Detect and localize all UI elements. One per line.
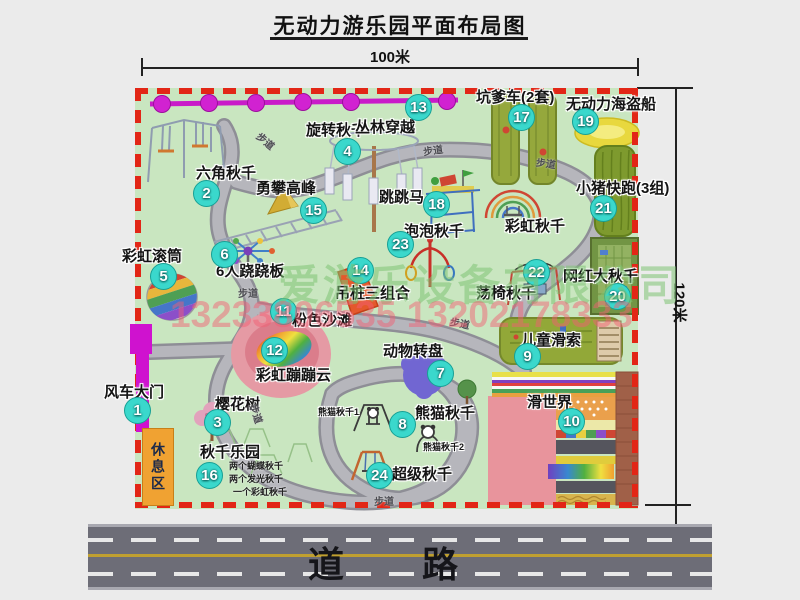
badge-13: 13	[405, 94, 432, 121]
badge-4: 4	[334, 138, 361, 165]
park-plan-image: 无动力游乐园平面布局图 100米 120米	[0, 0, 800, 600]
rest-area: 休息区	[142, 428, 174, 506]
rest-area-label: 休息区	[148, 442, 168, 493]
park-border-left	[135, 88, 141, 508]
badge-15: 15	[300, 197, 327, 224]
badge-3: 3	[204, 409, 231, 436]
badge-20: 20	[604, 283, 631, 310]
badge-8: 8	[389, 411, 416, 438]
label-rainbow-cloud: 彩虹蹦蹦云	[256, 364, 331, 385]
label-jumping-horse: 跳跳马	[379, 186, 424, 207]
badge-24: 24	[366, 462, 393, 489]
label-bubble-swing: 泡泡秋千	[404, 220, 464, 241]
trail-label: 步道	[374, 493, 394, 508]
label-jungle-crossing: 丛林穿越	[355, 116, 415, 137]
badge-14: 14	[347, 257, 374, 284]
label-kengdie-car: 坑爹车(2套)	[476, 86, 554, 107]
road: 道 路	[88, 524, 712, 590]
dimension-tick	[645, 504, 691, 506]
dimension-tick	[141, 58, 143, 76]
dimension-height-label: 120米	[670, 273, 691, 333]
badge-22: 22	[523, 259, 550, 286]
badge-2: 2	[193, 180, 220, 207]
badge-12: 12	[261, 337, 288, 364]
badge-16: 16	[196, 462, 223, 489]
windmill-gate-icon	[130, 324, 152, 354]
park-border-right	[632, 88, 638, 508]
badge-19: 19	[572, 108, 599, 135]
dimension-tick	[637, 87, 693, 89]
dimension-tick	[637, 58, 639, 76]
badge-21: 21	[590, 195, 617, 222]
label-hanging-piles: 吊桩三组合	[335, 282, 410, 303]
label-big-net-swing: 网红大秋千	[563, 265, 638, 286]
label-piggy-run: 小猪快跑(3组)	[576, 177, 669, 198]
badge-9: 9	[514, 343, 541, 370]
title-underline	[270, 37, 528, 40]
label-pink-beach: 粉色沙滩	[292, 309, 352, 330]
swing-park-note-3: 一个彩虹秋千	[233, 485, 287, 498]
swing-park-note-2: 两个发光秋千	[229, 472, 283, 485]
badge-17: 17	[508, 104, 535, 131]
badge-18: 18	[423, 191, 450, 218]
page-title: 无动力游乐园平面布局图	[0, 10, 800, 40]
badge-5: 5	[150, 263, 177, 290]
trail-label: 步道	[535, 154, 557, 172]
swing-park-note-1: 两个蝴蝶秋千	[229, 459, 283, 472]
dimension-width-label: 100米	[330, 46, 450, 67]
label-super-swing: 超级秋千	[392, 463, 452, 484]
park-border-top	[135, 88, 638, 94]
trail-label: 步道	[422, 141, 444, 159]
label-panda-swing-2: 熊猫秋千2	[423, 440, 464, 453]
trail-label: 步道	[238, 285, 258, 300]
label-animal-turntable: 动物转盘	[383, 340, 443, 361]
badge-10: 10	[558, 408, 585, 435]
badge-11: 11	[270, 298, 297, 325]
label-panda-swing: 熊猫秋千	[415, 402, 475, 423]
label-swing-chair: 荡椅秋千	[476, 282, 536, 303]
road-label: 道 路	[88, 536, 712, 588]
badge-23: 23	[387, 231, 414, 258]
badge-1: 1	[124, 397, 151, 424]
badge-7: 7	[427, 360, 454, 387]
label-panda-swing-1: 熊猫秋千1	[318, 405, 359, 418]
label-climbing-peak: 勇攀高峰	[256, 177, 316, 198]
dimension-line-top	[142, 67, 638, 69]
badge-6: 6	[211, 241, 238, 268]
label-rainbow-roller: 彩虹滚筒	[122, 245, 182, 266]
label-rainbow-swing: 彩虹秋千	[505, 215, 565, 236]
